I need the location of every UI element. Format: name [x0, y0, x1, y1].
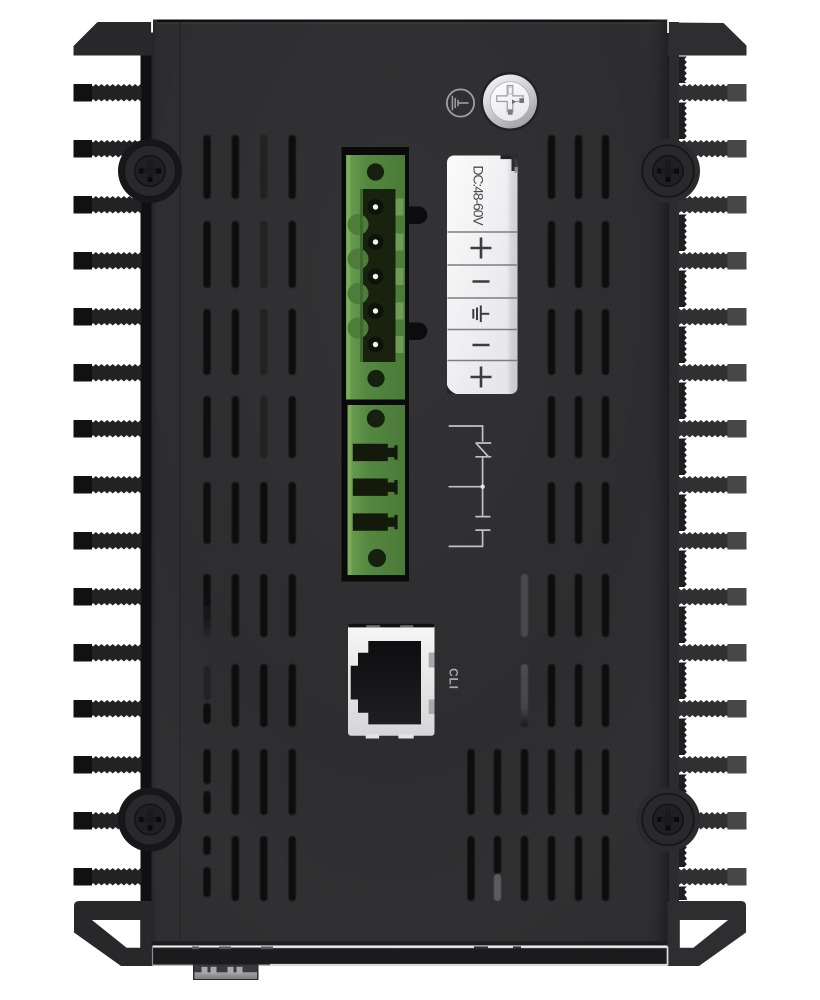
svg-text:DC:48-60V: DC:48-60V: [471, 165, 487, 226]
svg-text:CLI: CLI: [447, 668, 461, 690]
